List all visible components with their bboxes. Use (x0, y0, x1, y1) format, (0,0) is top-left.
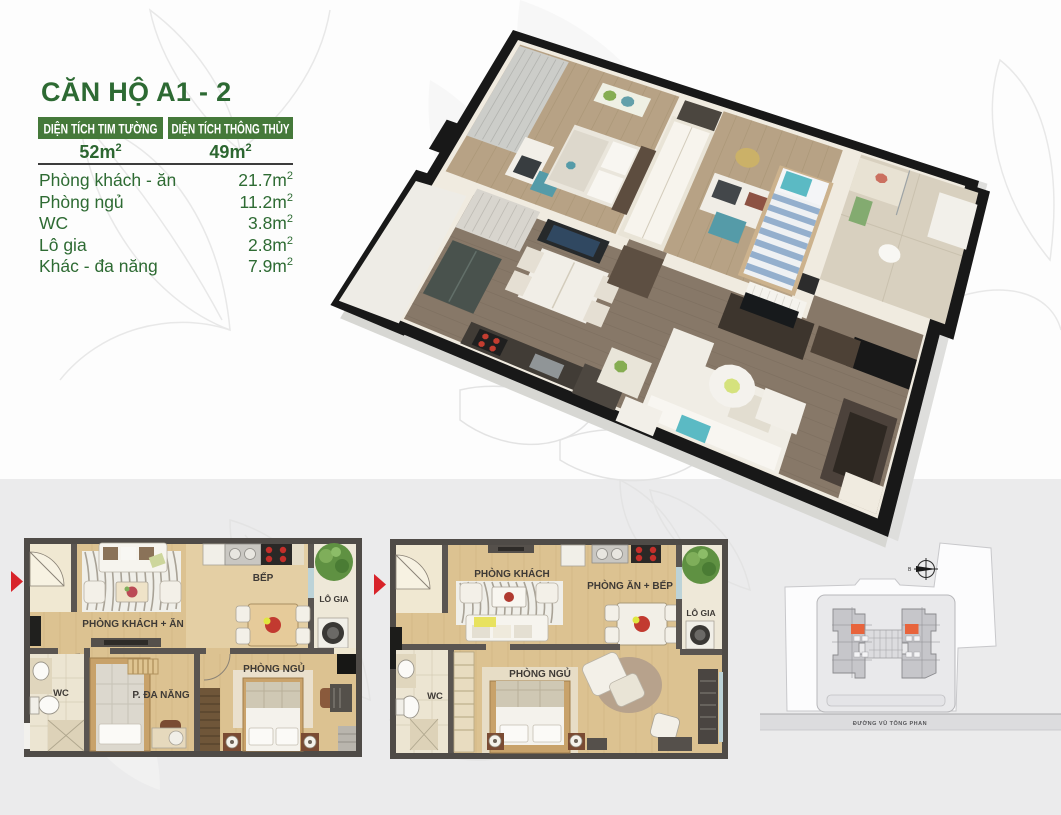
svg-text:LÔ GIA: LÔ GIA (319, 593, 348, 604)
svg-text:PHÒNG NGỦ: PHÒNG NGỦ (243, 662, 305, 675)
svg-text:WC: WC (427, 691, 443, 702)
svg-text:WC: WC (53, 688, 69, 699)
svg-text:ĐƯỜNG VŪ TÔNG PHAN: ĐƯỜNG VŪ TÔNG PHAN (853, 719, 927, 727)
svg-text:PHÒNG KHÁCH + ĂN: PHÒNG KHÁCH + ĂN (82, 617, 183, 630)
svg-text:PHÒNG NGỦ: PHÒNG NGỦ (509, 667, 571, 680)
svg-text:PHÒNG KHÁCH: PHÒNG KHÁCH (474, 567, 550, 580)
svg-text:P. ĐA NĂNG: P. ĐA NĂNG (132, 688, 189, 701)
svg-text:PHÒNG ĂN + BẾP: PHÒNG ĂN + BẾP (587, 579, 673, 592)
svg-text:B: B (908, 567, 912, 573)
svg-text:LÔ GIA: LÔ GIA (686, 607, 715, 618)
svg-text:BẾP: BẾP (253, 571, 274, 584)
